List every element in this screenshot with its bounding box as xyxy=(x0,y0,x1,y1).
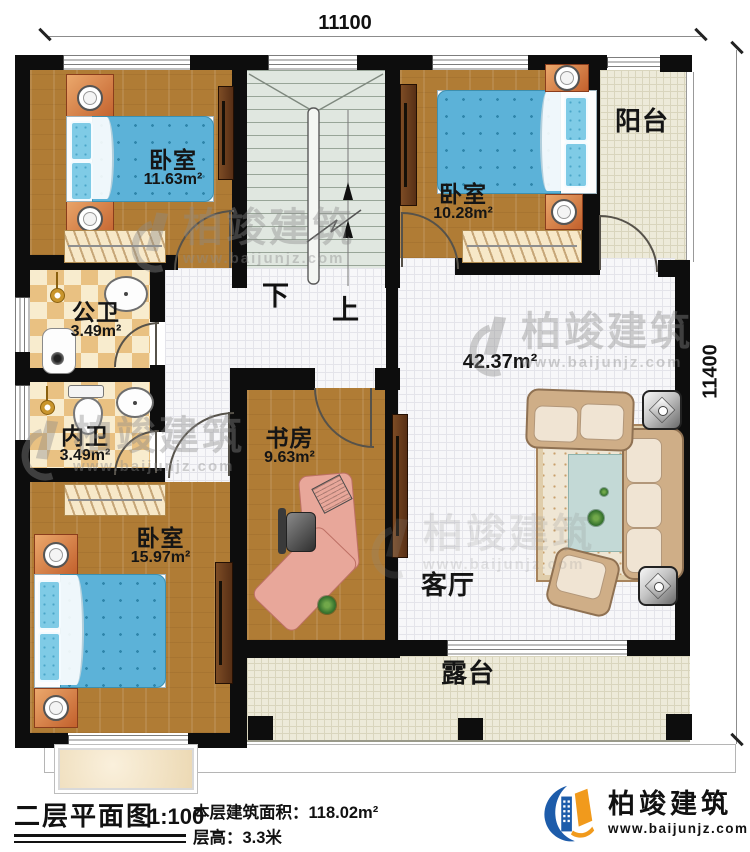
office-chair-seat xyxy=(286,512,316,552)
bedroom-tr-door xyxy=(401,212,403,267)
pillow xyxy=(70,161,93,201)
wall-post xyxy=(660,55,692,72)
brand-name: 柏竣建筑 xyxy=(608,791,749,818)
bath-public-door xyxy=(155,322,157,365)
brand-url: www.baijunjz.com xyxy=(608,821,749,836)
wall xyxy=(386,275,398,370)
bedroom-bl-door xyxy=(228,412,230,476)
title-underline xyxy=(14,841,186,843)
sofa-cushion xyxy=(626,483,662,528)
wall xyxy=(15,440,30,748)
room-name: 公卫 xyxy=(51,300,141,324)
window xyxy=(15,385,30,442)
room-name: 内卫 xyxy=(40,424,130,448)
tv-cabinet xyxy=(392,414,408,558)
wall xyxy=(385,55,400,288)
bed-fold xyxy=(58,575,84,685)
balcony-railing xyxy=(686,72,694,262)
wall xyxy=(190,55,268,70)
brand-logo: 柏竣建筑 www.baijunjz.com xyxy=(538,782,749,844)
room-area: 9.63m² xyxy=(242,450,337,467)
office-chair xyxy=(278,508,286,554)
room-name: 卧室 xyxy=(108,526,213,550)
wall xyxy=(375,368,400,390)
balcony-railing-window xyxy=(607,57,662,68)
pillow xyxy=(564,142,588,188)
living-area-value: 42.37m² xyxy=(440,352,560,373)
wall xyxy=(150,268,165,322)
floor-drain xyxy=(51,352,64,365)
wall xyxy=(15,368,150,382)
wardrobe xyxy=(64,484,166,516)
sofa-cushion xyxy=(533,405,578,443)
room-name: 卧室 xyxy=(408,182,518,206)
floor-height-line: 层高：3.3米 xyxy=(193,824,282,848)
room-label-bath-public: 公卫 3.49m² xyxy=(51,300,141,341)
corner-lamp-table xyxy=(638,566,678,606)
dimension-tick xyxy=(730,41,743,54)
dimension-tick xyxy=(38,28,51,41)
nightstand xyxy=(545,194,583,230)
floor-plan-canvas: 11100 11400 xyxy=(0,0,750,852)
corner-lamp-table xyxy=(642,390,682,430)
bay-window xyxy=(68,735,190,748)
wall xyxy=(230,368,315,390)
pillow xyxy=(38,632,61,682)
room-area: 15.97m² xyxy=(108,550,213,567)
floor-height-value: 3.3米 xyxy=(243,829,282,847)
pillow xyxy=(564,96,588,142)
room-label-study: 书房 9.63m² xyxy=(242,426,337,467)
plant-icon xyxy=(318,596,336,614)
bedroom-tl-door xyxy=(229,210,231,268)
title-underline xyxy=(14,834,186,837)
window xyxy=(63,55,192,70)
pillow xyxy=(38,580,61,630)
room-area: 3.49m² xyxy=(51,324,141,341)
wardrobe xyxy=(64,230,166,263)
room-area: 3.49m² xyxy=(40,448,130,465)
wardrobe xyxy=(462,230,582,263)
nightstand xyxy=(66,74,114,122)
room-area: 11.63m² xyxy=(118,172,228,189)
balcony-door xyxy=(599,215,601,270)
wall xyxy=(398,640,447,656)
room-name: 露台 xyxy=(418,660,518,687)
window xyxy=(432,55,530,70)
dimension-right-value: 11400 xyxy=(700,327,723,417)
stair-detail xyxy=(247,70,385,288)
nightstand xyxy=(545,64,589,92)
window xyxy=(447,640,629,656)
wall xyxy=(658,260,690,277)
dimension-top-value: 11100 xyxy=(300,12,390,35)
dimension-line-top xyxy=(45,36,701,37)
wall xyxy=(188,733,247,748)
room-label-bedroom-bl: 卧室 15.97m² xyxy=(108,526,213,567)
floor-area-label: 本层建筑面积： xyxy=(193,804,309,822)
wall xyxy=(230,640,400,658)
room-name: 客厅 xyxy=(400,572,496,599)
floor-area-value: 118.02m² xyxy=(309,804,379,822)
room-label-bedroom-tl: 卧室 11.63m² xyxy=(118,148,228,189)
nightstand xyxy=(34,534,78,576)
room-area: 10.28m² xyxy=(408,206,518,223)
plan-title: 二层平面图 xyxy=(14,796,154,833)
tv-cabinet xyxy=(215,562,233,684)
room-label-living: 客厅 xyxy=(400,572,496,599)
bed-fold xyxy=(540,91,564,191)
window xyxy=(15,297,30,354)
bed-fold xyxy=(90,117,114,199)
window xyxy=(268,55,359,70)
room-label-bedroom-tr: 卧室 10.28m² xyxy=(408,182,518,223)
dimension-tick xyxy=(694,28,707,41)
shower-stem xyxy=(56,272,58,289)
stair-up-label: 上 xyxy=(332,288,359,327)
room-name: 卧室 xyxy=(118,148,228,172)
room-label-bath-ensuite: 内卫 3.49m² xyxy=(40,424,130,465)
bath-ensuite-door xyxy=(155,430,157,473)
nightstand xyxy=(34,688,78,728)
floor-height-label: 层高： xyxy=(193,829,243,847)
shower-head-icon xyxy=(40,400,55,415)
pillow xyxy=(70,121,93,161)
wall xyxy=(232,55,247,288)
room-name: 书房 xyxy=(242,426,337,450)
wall xyxy=(627,640,690,656)
sink xyxy=(116,387,154,418)
terrace-post xyxy=(666,714,692,740)
terrace-post xyxy=(458,718,483,740)
table-flowers xyxy=(588,510,604,526)
room-name: 阳台 xyxy=(608,108,676,135)
floor-area-line: 本层建筑面积：118.02m² xyxy=(193,799,378,823)
table-flowers xyxy=(600,488,608,496)
dimension-line-right xyxy=(736,50,737,744)
terrace-post xyxy=(248,716,273,740)
wall xyxy=(15,733,68,748)
study-door xyxy=(370,388,372,446)
shower-stem xyxy=(46,386,48,401)
bay-window-sill xyxy=(58,748,194,790)
stair-down-label: 下 xyxy=(262,274,289,313)
sofa-cushion xyxy=(579,403,624,441)
room-label-balcony: 阳台 xyxy=(608,108,676,135)
room-label-terrace: 露台 xyxy=(418,660,518,687)
brand-logo-icon xyxy=(538,782,600,844)
